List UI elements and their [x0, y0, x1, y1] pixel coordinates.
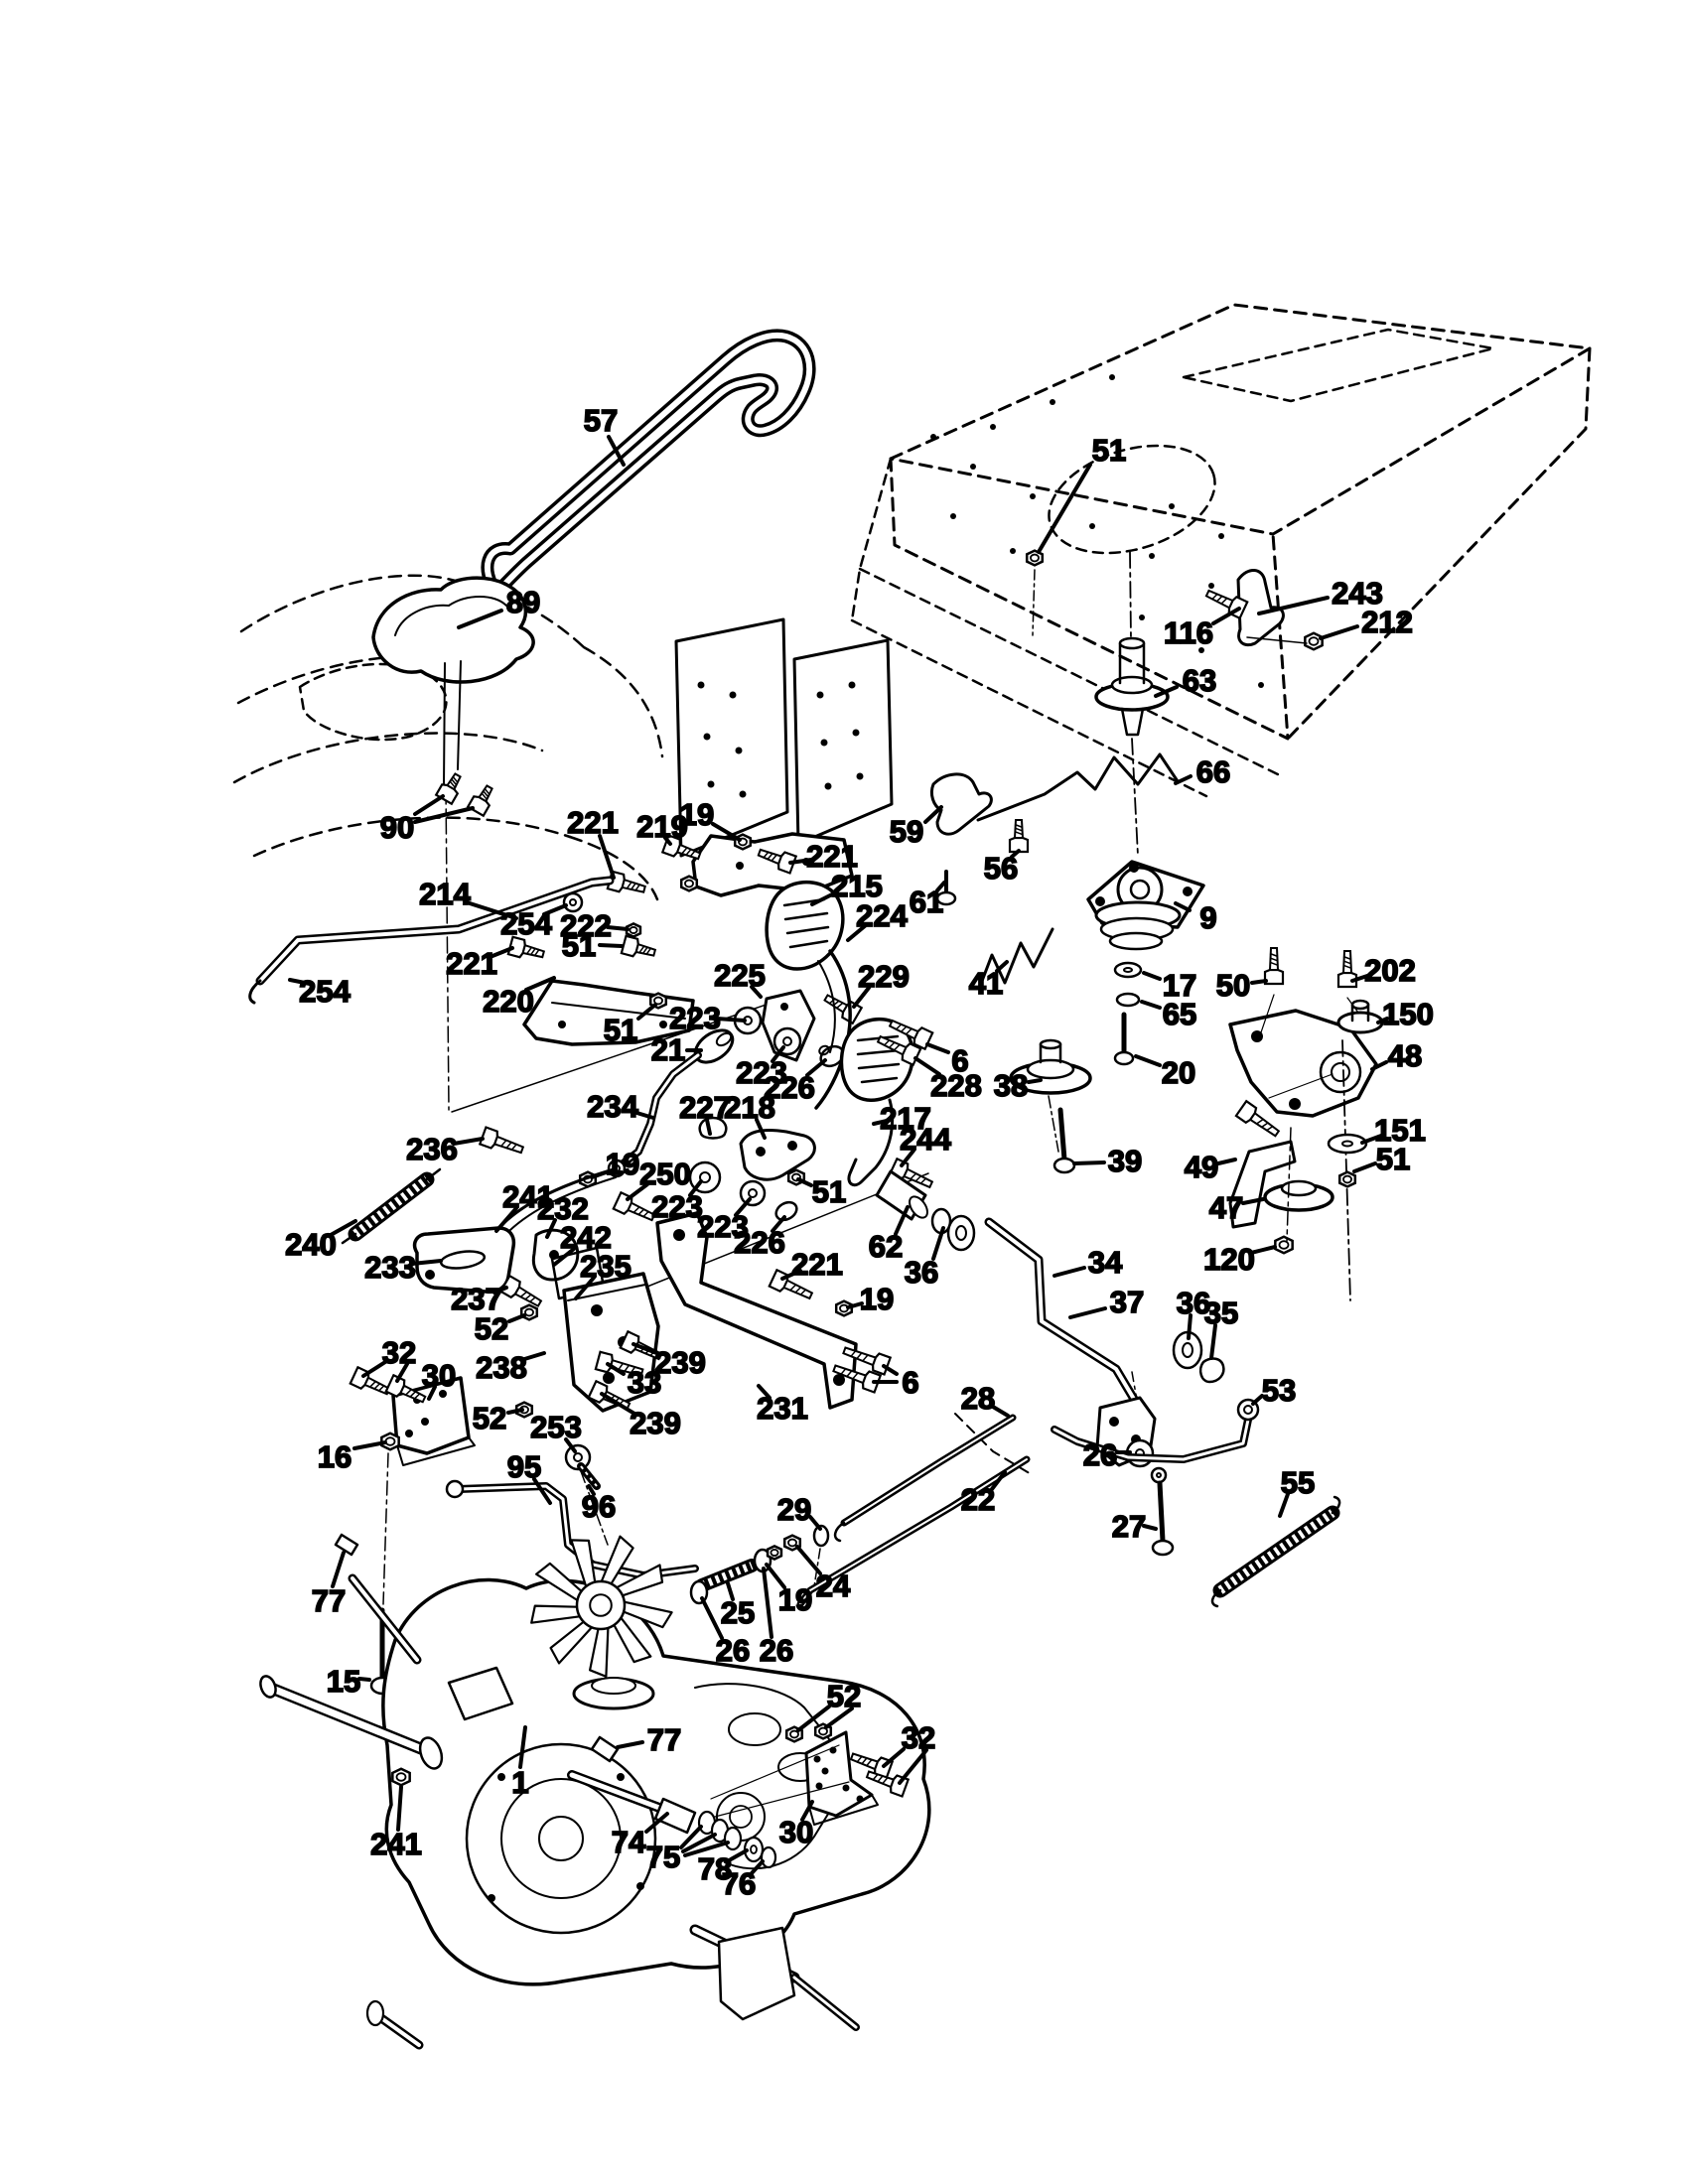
- callout-235: 235: [580, 1249, 631, 1284]
- line-71: [1049, 1096, 1058, 1152]
- callout-66: 66: [1196, 754, 1230, 789]
- key-77a: [336, 1535, 357, 1555]
- leader-223-0: [717, 1019, 745, 1021]
- ellipse-228: [258, 1674, 279, 1699]
- callout-224: 224: [856, 898, 908, 933]
- ellipse-47: [1112, 677, 1152, 693]
- leader-26-0: [764, 1569, 772, 1637]
- callout-39: 39: [1108, 1144, 1142, 1178]
- callout-75: 75: [646, 1840, 680, 1874]
- callout-61: 61: [910, 885, 943, 919]
- bolt-20-head: [1115, 1052, 1133, 1064]
- frame-left-end: [852, 459, 891, 620]
- shaft-bracket: [719, 1928, 794, 2019]
- callout-32: 32: [382, 1335, 416, 1370]
- callout-6: 6: [902, 1365, 918, 1400]
- ellipse-92: [1282, 1181, 1316, 1195]
- callout-19: 19: [860, 1282, 894, 1316]
- washer-17: [1115, 963, 1141, 977]
- callout-214: 214: [419, 877, 471, 911]
- leader-29-0: [810, 1517, 820, 1529]
- callout-254: 254: [299, 974, 351, 1009]
- fender-dashed-7: [300, 664, 446, 740]
- ellipse-225: [592, 1678, 635, 1694]
- callout-229: 229: [858, 959, 910, 994]
- diagram-page: 5751899024321211663665659612191922122121…: [0, 0, 1684, 2184]
- callout-57: 57: [584, 403, 618, 438]
- path-121: [818, 961, 835, 1052]
- ellipse-70: [1041, 1040, 1060, 1048]
- callout-59: 59: [890, 814, 923, 849]
- callout-16: 16: [318, 1439, 351, 1474]
- callout-90: 90: [380, 810, 414, 845]
- pin-90b: [468, 782, 497, 815]
- callout-150: 150: [1382, 997, 1434, 1031]
- callout-52: 52: [473, 1401, 506, 1435]
- bolt-237: [500, 1276, 544, 1311]
- wire-66: [978, 754, 1178, 820]
- washer-36a: [948, 1216, 974, 1250]
- callout-51: 51: [812, 1174, 846, 1209]
- leader-28-0: [993, 1407, 1008, 1416]
- leader-53-0: [1253, 1396, 1262, 1404]
- callout-47: 47: [1209, 1190, 1243, 1225]
- washer-223b: [774, 1028, 800, 1054]
- callout-116: 116: [1164, 615, 1213, 650]
- callout-239: 239: [654, 1345, 706, 1380]
- callout-233: 233: [364, 1250, 416, 1285]
- callout-34: 34: [1088, 1245, 1123, 1280]
- callout-239: 239: [630, 1406, 681, 1440]
- line-52: [1132, 739, 1138, 856]
- callout-38: 38: [994, 1068, 1028, 1103]
- leader-51-0: [1039, 465, 1090, 552]
- callout-238: 238: [476, 1350, 527, 1385]
- callout-51: 51: [1376, 1142, 1410, 1176]
- frame-top-face: [891, 305, 1590, 534]
- leader-17-0: [1144, 973, 1160, 979]
- parts-diagram: 5751899024321211663665659612191922122121…: [0, 0, 1684, 2184]
- line-20: [444, 663, 445, 786]
- bolt-39-head: [1054, 1159, 1074, 1172]
- callout-51: 51: [604, 1013, 637, 1047]
- callout-26: 26: [1083, 1437, 1117, 1472]
- callout-35: 35: [1204, 1296, 1238, 1330]
- ring-176: [1152, 1468, 1166, 1482]
- callout-36: 36: [905, 1255, 938, 1290]
- frame-hole: [1036, 427, 1228, 572]
- callout-227: 227: [679, 1090, 731, 1125]
- callout-221: 221: [791, 1247, 843, 1282]
- callout-37: 37: [1110, 1285, 1144, 1319]
- path-50: [1122, 709, 1143, 735]
- callout-63: 63: [1183, 663, 1216, 698]
- washer-223d: [741, 1181, 765, 1205]
- leader-34-0: [1054, 1268, 1084, 1276]
- bolt-51b: [622, 936, 657, 962]
- washer-76: [762, 1847, 775, 1867]
- ellipse-243: [367, 2001, 383, 2025]
- callout-220: 220: [483, 984, 534, 1019]
- callout-231: 231: [757, 1391, 808, 1426]
- leader-38-0: [1029, 1080, 1041, 1082]
- callout-254: 254: [500, 906, 552, 941]
- callout-9: 9: [1199, 900, 1216, 935]
- callout-33: 33: [628, 1365, 661, 1400]
- callout-19: 19: [778, 1582, 812, 1617]
- callout-228: 228: [930, 1068, 982, 1103]
- spacer-150: [1338, 1013, 1382, 1032]
- spring-240: [355, 1179, 427, 1234]
- callout-25: 25: [721, 1595, 755, 1630]
- callout-244: 244: [900, 1122, 951, 1157]
- ring-76: [1321, 1052, 1360, 1092]
- nut-19e: [768, 1546, 781, 1559]
- bolt-50: [1265, 948, 1283, 984]
- leader-52-0: [509, 1315, 524, 1321]
- callout-1: 1: [511, 1765, 528, 1800]
- leader-39-0: [1074, 1162, 1104, 1163]
- callout-24: 24: [816, 1569, 851, 1603]
- callout-202: 202: [1364, 953, 1416, 988]
- callout-19: 19: [606, 1147, 639, 1181]
- callout-65: 65: [1163, 997, 1196, 1031]
- bolt-39-shaft: [1060, 1110, 1064, 1160]
- stud-bottom-left: [377, 2015, 419, 2045]
- callout-221: 221: [567, 805, 619, 840]
- callout-253: 253: [530, 1410, 582, 1444]
- leader-236-0: [454, 1139, 483, 1144]
- callout-76: 76: [722, 1866, 756, 1901]
- leader-49-0: [1218, 1160, 1235, 1163]
- callout-29: 29: [777, 1492, 811, 1527]
- callout-77: 77: [312, 1583, 346, 1618]
- callout-240: 240: [285, 1227, 337, 1262]
- nut-212: [1305, 633, 1322, 649]
- leader-50-0: [1252, 981, 1266, 983]
- callout-20: 20: [1162, 1055, 1195, 1090]
- leader-26-0: [702, 1598, 722, 1638]
- callout-223: 223: [669, 1001, 721, 1035]
- callout-51: 51: [562, 928, 596, 963]
- frame-right-end: [1288, 348, 1590, 739]
- leader-65-0: [1142, 1002, 1160, 1008]
- callout-241: 241: [370, 1827, 422, 1861]
- bracket-59: [931, 774, 991, 834]
- nut-51e: [1339, 1172, 1355, 1187]
- rod-95: [459, 1486, 695, 1575]
- callout-26: 26: [716, 1633, 750, 1668]
- ellipse-49: [1120, 638, 1144, 648]
- plate-b: [794, 640, 892, 844]
- callout-236: 236: [406, 1132, 458, 1166]
- callout-62: 62: [869, 1229, 903, 1264]
- nut-241b: [392, 1769, 409, 1785]
- callout-28: 28: [961, 1381, 995, 1416]
- leader-221-0: [600, 836, 614, 878]
- callout-55: 55: [1281, 1465, 1315, 1500]
- washer-65: [1117, 994, 1139, 1006]
- spring-55: [1220, 1513, 1333, 1590]
- callout-52: 52: [475, 1311, 508, 1346]
- callout-95: 95: [507, 1449, 541, 1484]
- bolt-27b-head: [1153, 1541, 1173, 1555]
- bolt-56: [1010, 820, 1028, 852]
- callout-27: 27: [1112, 1509, 1146, 1544]
- callout-48: 48: [1388, 1038, 1422, 1073]
- leader-51-0: [798, 1179, 811, 1185]
- callout-74: 74: [612, 1825, 646, 1859]
- callout-30: 30: [779, 1815, 813, 1849]
- callout-30: 30: [422, 1358, 456, 1393]
- callout-221: 221: [446, 946, 497, 981]
- callout-56: 56: [984, 851, 1018, 886]
- bolt-27b-shaft: [1160, 1483, 1163, 1541]
- callout-22: 22: [961, 1482, 995, 1517]
- ellipse-61: [1110, 933, 1162, 949]
- callout-89: 89: [506, 585, 540, 619]
- callout-226: 226: [734, 1225, 785, 1260]
- callout-250: 250: [639, 1157, 691, 1191]
- frame-cutout: [1184, 330, 1493, 401]
- callout-234: 234: [587, 1089, 638, 1124]
- callout-225: 225: [714, 958, 766, 993]
- leader-15-0: [359, 1679, 369, 1680]
- line-51: [1130, 552, 1131, 639]
- nut-19b: [681, 877, 697, 891]
- callout-32: 32: [902, 1720, 935, 1755]
- callout-51: 51: [1092, 433, 1126, 468]
- callout-21: 21: [651, 1032, 685, 1067]
- callout-26: 26: [760, 1633, 793, 1668]
- callout-96: 96: [582, 1489, 616, 1524]
- leader-6-0: [927, 1044, 948, 1052]
- drive-belt-57: [488, 336, 809, 593]
- dots-145: [425, 1270, 435, 1280]
- callout-50: 50: [1216, 968, 1250, 1003]
- nut-120: [1275, 1237, 1292, 1253]
- callout-52: 52: [827, 1679, 861, 1713]
- leader-20-0: [1136, 1056, 1160, 1065]
- callout-212: 212: [1361, 605, 1413, 639]
- callout-19: 19: [680, 797, 714, 832]
- callout-120: 120: [1203, 1242, 1255, 1277]
- tube-240: [794, 1978, 856, 2027]
- leader-51-0: [600, 945, 622, 946]
- plug-226b: [772, 1199, 799, 1224]
- callout-77: 77: [647, 1722, 681, 1757]
- line-37: [1033, 570, 1035, 635]
- callout-49: 49: [1185, 1150, 1218, 1184]
- screw-236: [480, 1127, 525, 1158]
- washer-75c: [725, 1828, 741, 1849]
- ball-95: [447, 1481, 463, 1497]
- leader-77-0: [333, 1553, 344, 1586]
- callout-218: 218: [724, 1090, 775, 1125]
- fender-dashed-6: [584, 647, 662, 756]
- cap-35b: [1200, 1359, 1223, 1382]
- callout-41: 41: [969, 966, 1003, 1001]
- callout-53: 53: [1262, 1373, 1296, 1408]
- leader-90-0: [415, 796, 443, 814]
- callout-223: 223: [651, 1189, 703, 1224]
- leader-212-0: [1321, 626, 1357, 638]
- leader-37-0: [1070, 1308, 1105, 1317]
- line-202: [383, 1453, 388, 1604]
- ellipse-68: [1028, 1060, 1073, 1078]
- callout-15: 15: [327, 1664, 360, 1699]
- bolt-250: [614, 1192, 657, 1225]
- leader-51-0: [1354, 1163, 1375, 1171]
